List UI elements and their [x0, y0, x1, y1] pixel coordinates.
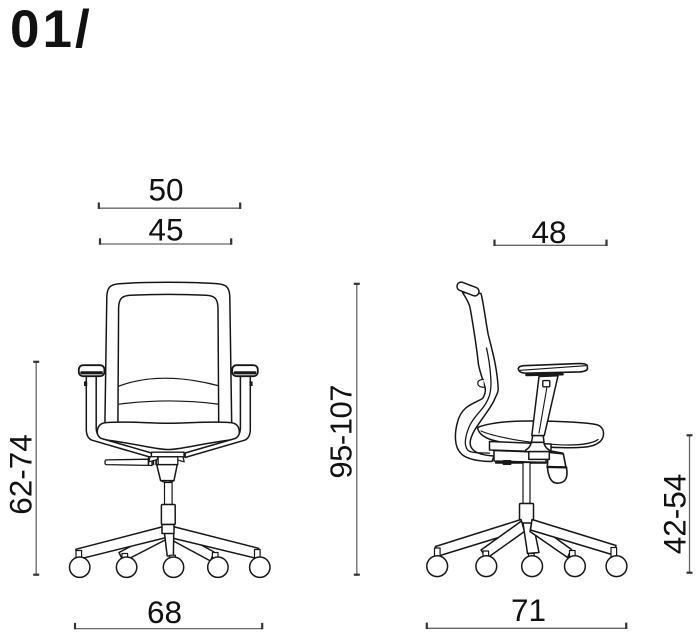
- svg-text:45: 45: [148, 211, 183, 247]
- svg-text:01/: 01/: [10, 0, 93, 59]
- svg-text:48: 48: [531, 214, 566, 250]
- svg-text:42-54: 42-54: [657, 474, 693, 555]
- svg-text:62-74: 62-74: [3, 434, 39, 515]
- svg-text:71: 71: [511, 592, 546, 628]
- svg-text:95-107: 95-107: [324, 385, 359, 479]
- svg-text:50: 50: [148, 172, 183, 208]
- svg-text:68: 68: [147, 594, 182, 630]
